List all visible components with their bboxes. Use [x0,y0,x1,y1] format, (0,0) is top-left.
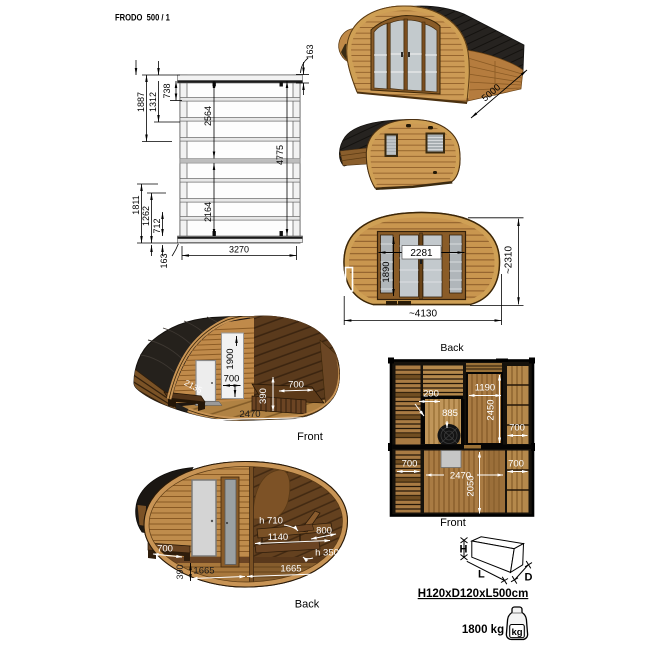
svg-text:1665: 1665 [280,564,301,575]
svg-text:2164: 2164 [203,202,213,222]
svg-text:163: 163 [159,253,169,268]
svg-text:2050: 2050 [466,475,477,496]
svg-text:1811: 1811 [131,195,141,214]
svg-text:700: 700 [509,423,525,434]
svg-text:700: 700 [508,459,524,470]
svg-text:163: 163 [305,44,315,59]
svg-text:2281: 2281 [410,248,433,259]
svg-text:H: H [460,544,468,556]
svg-text:~4130: ~4130 [409,309,438,320]
svg-text:1887: 1887 [136,92,146,112]
svg-text:700: 700 [288,380,304,391]
svg-text:1890: 1890 [381,261,392,282]
svg-text:390: 390 [175,564,185,579]
svg-text:3270: 3270 [229,245,249,255]
svg-text:700: 700 [157,544,173,555]
svg-text:712: 712 [152,218,162,233]
svg-text:1800 kg: 1800 kg [462,624,504,636]
svg-text:H120xD120xL500cm: H120xD120xL500cm [418,588,529,600]
svg-text:738: 738 [162,83,172,98]
svg-text:1665: 1665 [193,566,214,577]
svg-text:2470: 2470 [239,409,260,420]
svg-text:2564: 2564 [203,106,213,126]
svg-text:290: 290 [423,389,439,400]
svg-text:700: 700 [224,374,240,385]
svg-text:D: D [525,572,533,584]
svg-text:FRODO 500 / 1: FRODO 500 / 1 [115,12,170,23]
svg-text:700: 700 [402,459,418,470]
svg-text:h 710: h 710 [259,516,283,527]
svg-text:h 350: h 350 [315,548,339,559]
svg-text:L: L [478,569,485,581]
svg-text:~2310: ~2310 [504,246,515,275]
svg-text:390: 390 [258,388,269,404]
svg-text:1312: 1312 [148,92,158,112]
svg-text:2450: 2450 [486,399,497,420]
svg-text:kg: kg [511,627,522,638]
svg-text:885: 885 [442,408,458,419]
svg-text:1140: 1140 [268,532,288,543]
svg-text:4775: 4775 [275,145,285,165]
svg-text:Front: Front [297,431,323,443]
svg-text:Back: Back [295,599,320,611]
svg-text:1190: 1190 [475,383,495,394]
svg-text:1262: 1262 [141,206,151,226]
svg-text:Back: Back [440,342,464,354]
svg-text:Front: Front [440,517,466,529]
svg-text:1900: 1900 [225,348,236,369]
